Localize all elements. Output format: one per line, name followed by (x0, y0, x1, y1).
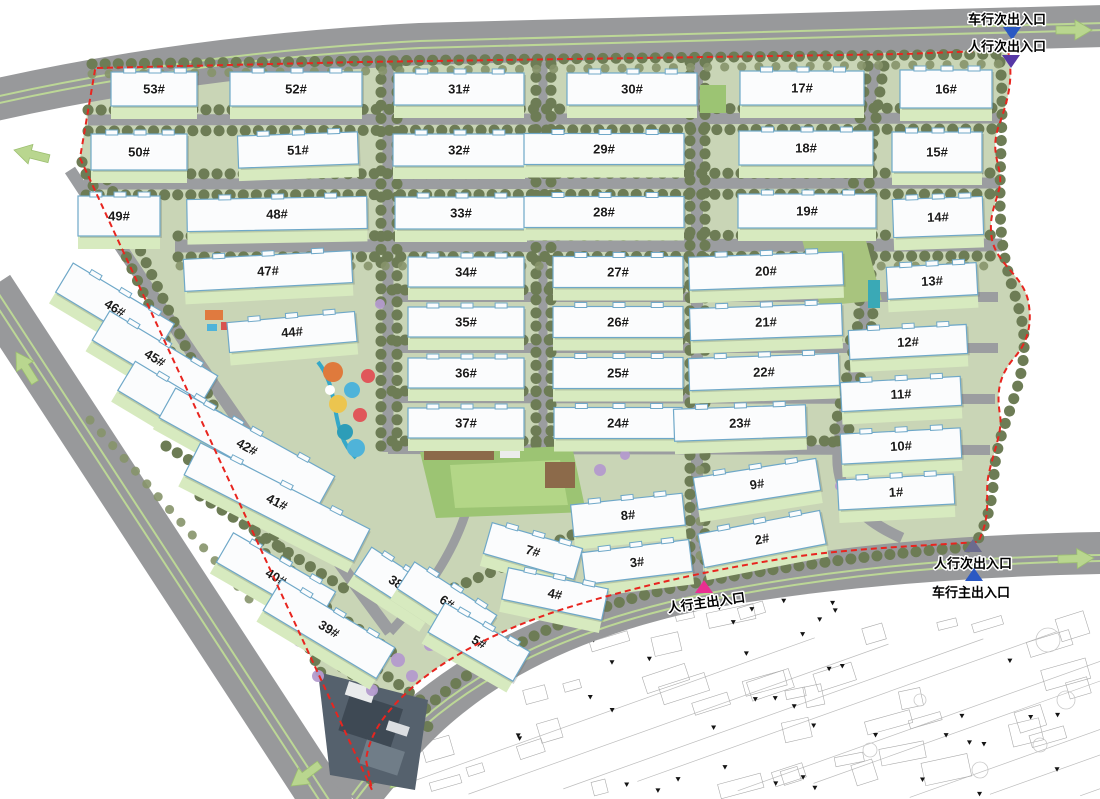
building-notch (959, 193, 971, 198)
building-notch (926, 261, 938, 267)
building-notch (114, 192, 126, 197)
building-label: 34# (455, 265, 477, 280)
building-notch (461, 303, 473, 308)
building-label: 10# (890, 438, 913, 454)
building-notch (149, 68, 161, 73)
master-plan-svg: 53#52#31#30#17#16#50#51#32#29#18#15#49#4… (0, 0, 1100, 799)
building-notch (252, 68, 264, 73)
building-notch (806, 249, 818, 254)
entrance-label: 车行次出入口 (968, 12, 1046, 27)
building-29: 29# (524, 130, 686, 178)
building-notch (598, 545, 611, 551)
building-notch (495, 354, 507, 359)
building-28: 28# (524, 193, 686, 241)
building-notch (323, 309, 335, 315)
building-label: 26# (607, 315, 629, 330)
building-notch (760, 302, 772, 307)
building-label: 13# (921, 273, 944, 289)
building-notch (552, 193, 564, 198)
building-24: 24# (554, 404, 684, 452)
building-notch (134, 130, 146, 135)
building-notch (613, 404, 625, 409)
building-notch (461, 253, 473, 258)
building-notch (802, 190, 814, 195)
building-notch (761, 190, 773, 195)
building-label: 31# (448, 82, 470, 97)
building-26: 26# (553, 303, 685, 351)
building-37: 37# (408, 404, 526, 451)
building-notch (138, 192, 150, 197)
building-label: 24# (607, 416, 629, 431)
building-21: 21# (689, 299, 845, 353)
building-notch (213, 253, 225, 259)
building-notch (495, 193, 507, 198)
building-18: 18# (739, 127, 875, 178)
building-notch (860, 377, 872, 383)
building-notch (248, 316, 260, 322)
building-50: 50# (91, 130, 189, 183)
building-notch (646, 193, 658, 198)
building-notch (952, 259, 964, 265)
building-label: 17# (791, 81, 813, 96)
building-notch (621, 494, 633, 500)
building-label: 20# (755, 263, 778, 279)
building-notch (427, 354, 439, 359)
building-label: 16# (935, 82, 957, 97)
building-notch (937, 321, 949, 327)
building-label: 11# (890, 386, 912, 402)
building-49: 49# (78, 192, 162, 249)
building-label: 28# (593, 205, 615, 220)
building-notch (90, 192, 102, 197)
building-notch (330, 68, 342, 73)
building-36: 36# (408, 354, 526, 401)
building-notch (867, 325, 879, 331)
building-label: 44# (281, 324, 305, 341)
building-label: 22# (753, 364, 776, 380)
building-notch (427, 404, 439, 409)
building-notch (840, 127, 852, 132)
building-notch (761, 67, 773, 72)
building-notch (833, 67, 845, 72)
building-notch (843, 190, 855, 195)
building-19: 19# (738, 190, 878, 241)
building-notch (575, 404, 587, 409)
building-label: 51# (287, 142, 310, 158)
building-notch (890, 473, 902, 479)
building-notch (661, 537, 674, 543)
building-notch (902, 323, 914, 329)
building-notch (760, 250, 772, 255)
building-label: 29# (593, 142, 615, 157)
building-label: 1# (888, 484, 904, 500)
building-notch (758, 352, 770, 357)
building-label: 48# (266, 206, 289, 221)
building-notch (575, 253, 587, 258)
building-notch (651, 354, 663, 359)
building-label: 14# (927, 209, 950, 225)
building-20: 20# (688, 248, 846, 303)
building-notch (715, 252, 727, 257)
building-notch (805, 300, 817, 305)
building-notch (714, 353, 726, 358)
entrance-label: 人行次出入口 (934, 556, 1012, 571)
building-notch (773, 401, 785, 406)
building-notch (493, 130, 505, 135)
building-notch (734, 403, 746, 408)
building-33: 33# (395, 193, 529, 242)
building-notch (427, 303, 439, 308)
building-23: 23# (673, 401, 809, 455)
building-notch (856, 474, 868, 480)
building-notch (589, 69, 601, 74)
building-51: 51# (237, 128, 361, 181)
building-53: 53# (111, 68, 199, 119)
building-notch (427, 253, 439, 258)
building-label: 49# (108, 209, 130, 224)
building-notch (906, 128, 918, 133)
building-notch (311, 248, 323, 254)
building-notch (162, 130, 174, 135)
building-notch (599, 193, 611, 198)
building-notch (630, 541, 643, 547)
building-label: 19# (796, 204, 818, 219)
building-34: 34# (408, 253, 526, 300)
building-label: 47# (257, 263, 280, 279)
building-label: 12# (897, 334, 920, 350)
entrance-label: 车行主出入口 (932, 585, 1010, 600)
building-notch (716, 303, 728, 308)
building-label: 21# (755, 314, 778, 330)
building-notch (325, 193, 337, 198)
building-label: 8# (620, 507, 637, 524)
building-22: 22# (688, 349, 842, 403)
building-notch (924, 471, 936, 477)
building-notch (801, 127, 813, 132)
building-notch (651, 303, 663, 308)
building-52: 52# (230, 68, 364, 119)
building-notch (797, 67, 809, 72)
building-25: 25# (553, 354, 685, 402)
building-16: 16# (900, 66, 994, 121)
building-14: 14# (892, 192, 986, 250)
building-notch (900, 262, 912, 268)
building-17: 17# (740, 67, 866, 118)
building-notch (968, 66, 980, 71)
building-label: 30# (621, 82, 643, 97)
building-notch (941, 66, 953, 71)
building-31: 31# (394, 69, 526, 118)
building-30: 30# (567, 69, 699, 118)
building-label: 35# (455, 315, 477, 330)
building-label: 52# (285, 82, 307, 97)
building-notch (651, 404, 663, 409)
building-label: 33# (450, 206, 472, 221)
building-notch (613, 253, 625, 258)
building-notch (802, 350, 814, 355)
building-notch (651, 253, 663, 258)
building-notch (665, 69, 677, 74)
building-notch (461, 404, 473, 409)
building-notch (416, 69, 428, 74)
building-notch (613, 303, 625, 308)
building-notch (328, 129, 340, 134)
building-notch (599, 130, 611, 135)
site-plan-page: { "plan": { "type": "residential-master-… (0, 0, 1100, 799)
building-notch (762, 127, 774, 132)
building-notch (914, 66, 926, 71)
building-notch (454, 69, 466, 74)
building-notch (492, 69, 504, 74)
building-notch (461, 354, 473, 359)
building-notch (219, 195, 231, 200)
building-label: 27# (607, 265, 629, 280)
building-notch (106, 130, 118, 135)
building-label: 3# (629, 554, 646, 571)
building-notch (895, 375, 907, 381)
building-label: 15# (926, 145, 948, 160)
building-27: 27# (553, 253, 685, 301)
building-notch (646, 130, 658, 135)
building-label: 37# (455, 416, 477, 431)
building-notch (696, 404, 708, 409)
building-32: 32# (393, 130, 527, 179)
building-label: 23# (729, 415, 752, 431)
building-notch (575, 303, 587, 308)
building-label: 36# (455, 366, 477, 381)
building-notch (272, 194, 284, 199)
building-35: 35# (408, 303, 526, 350)
building-notch (860, 429, 872, 435)
building-notch (895, 427, 907, 433)
building-notch (552, 130, 564, 135)
building-notch (495, 253, 507, 258)
building-15: 15# (892, 128, 984, 185)
building-notch (174, 68, 186, 73)
building-notch (958, 128, 970, 133)
entrance-label: 人行次出入口 (968, 39, 1046, 54)
building-notch (930, 425, 942, 431)
building-notch (257, 131, 269, 136)
building-notch (575, 354, 587, 359)
building-notch (292, 130, 304, 135)
building-notch (495, 303, 507, 308)
building-notch (906, 195, 918, 200)
building-notch (417, 193, 429, 198)
building-notch (613, 354, 625, 359)
building-notch (495, 404, 507, 409)
building-notch (262, 251, 274, 257)
building-notch (124, 68, 136, 73)
building-label: 18# (795, 141, 817, 156)
building-notch (285, 312, 297, 318)
building-label: 25# (607, 366, 629, 381)
building-notch (454, 130, 466, 135)
building-48: 48# (187, 192, 370, 244)
building-notch (627, 69, 639, 74)
building-13: 13# (886, 259, 980, 313)
building-label: 32# (448, 143, 470, 158)
building-notch (588, 498, 600, 504)
building-notch (415, 130, 427, 135)
building-notch (930, 373, 942, 379)
building-notch (456, 193, 468, 198)
building-label: 53# (143, 82, 165, 97)
building-notch (932, 194, 944, 199)
building-notch (932, 128, 944, 133)
building-notch (291, 68, 303, 73)
building-notch (654, 491, 666, 497)
building-label: 50# (128, 145, 150, 160)
